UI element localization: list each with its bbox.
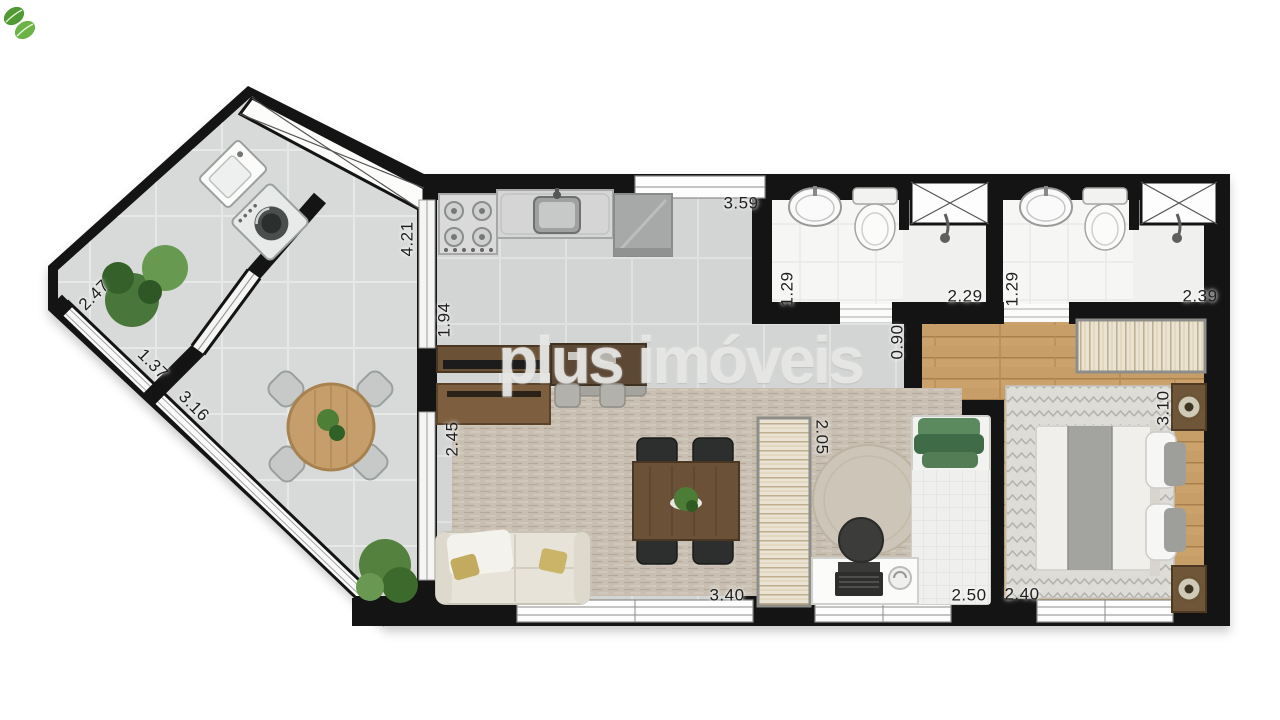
laptop: [838, 562, 880, 572]
watermark-text: plus imóveis: [498, 323, 862, 397]
bedroom2-furniture: [758, 416, 990, 606]
pillow: [1164, 442, 1186, 486]
watermark: plus imóveis: [498, 322, 968, 402]
laptop: [835, 572, 883, 596]
wardrobe: [758, 418, 810, 606]
single-bed: [912, 416, 990, 604]
nightstand: [1172, 566, 1206, 612]
bath1-door: [840, 304, 892, 322]
stove: [439, 194, 497, 254]
table-plant: [329, 425, 345, 441]
sofa: [436, 529, 590, 604]
wardrobe: [1077, 320, 1205, 372]
toilet: [1083, 188, 1127, 250]
pillow: [1164, 508, 1186, 552]
pillow: [922, 452, 978, 468]
fridge: [614, 194, 672, 256]
nightstand: [1172, 384, 1206, 430]
bath2-door: [1004, 304, 1069, 322]
desk: [812, 558, 918, 604]
floor-plan: plus imóveis 2.47 1.37 3.16 4.21 1.94 3.…: [0, 0, 1280, 720]
toilet: [853, 188, 897, 250]
watermark-leaf-icon: [0, 0, 40, 46]
vent-shaft-1: [911, 182, 989, 224]
kitchen-counter: [497, 188, 613, 238]
bedroom1-window: [1037, 600, 1173, 622]
pillow: [914, 434, 984, 454]
